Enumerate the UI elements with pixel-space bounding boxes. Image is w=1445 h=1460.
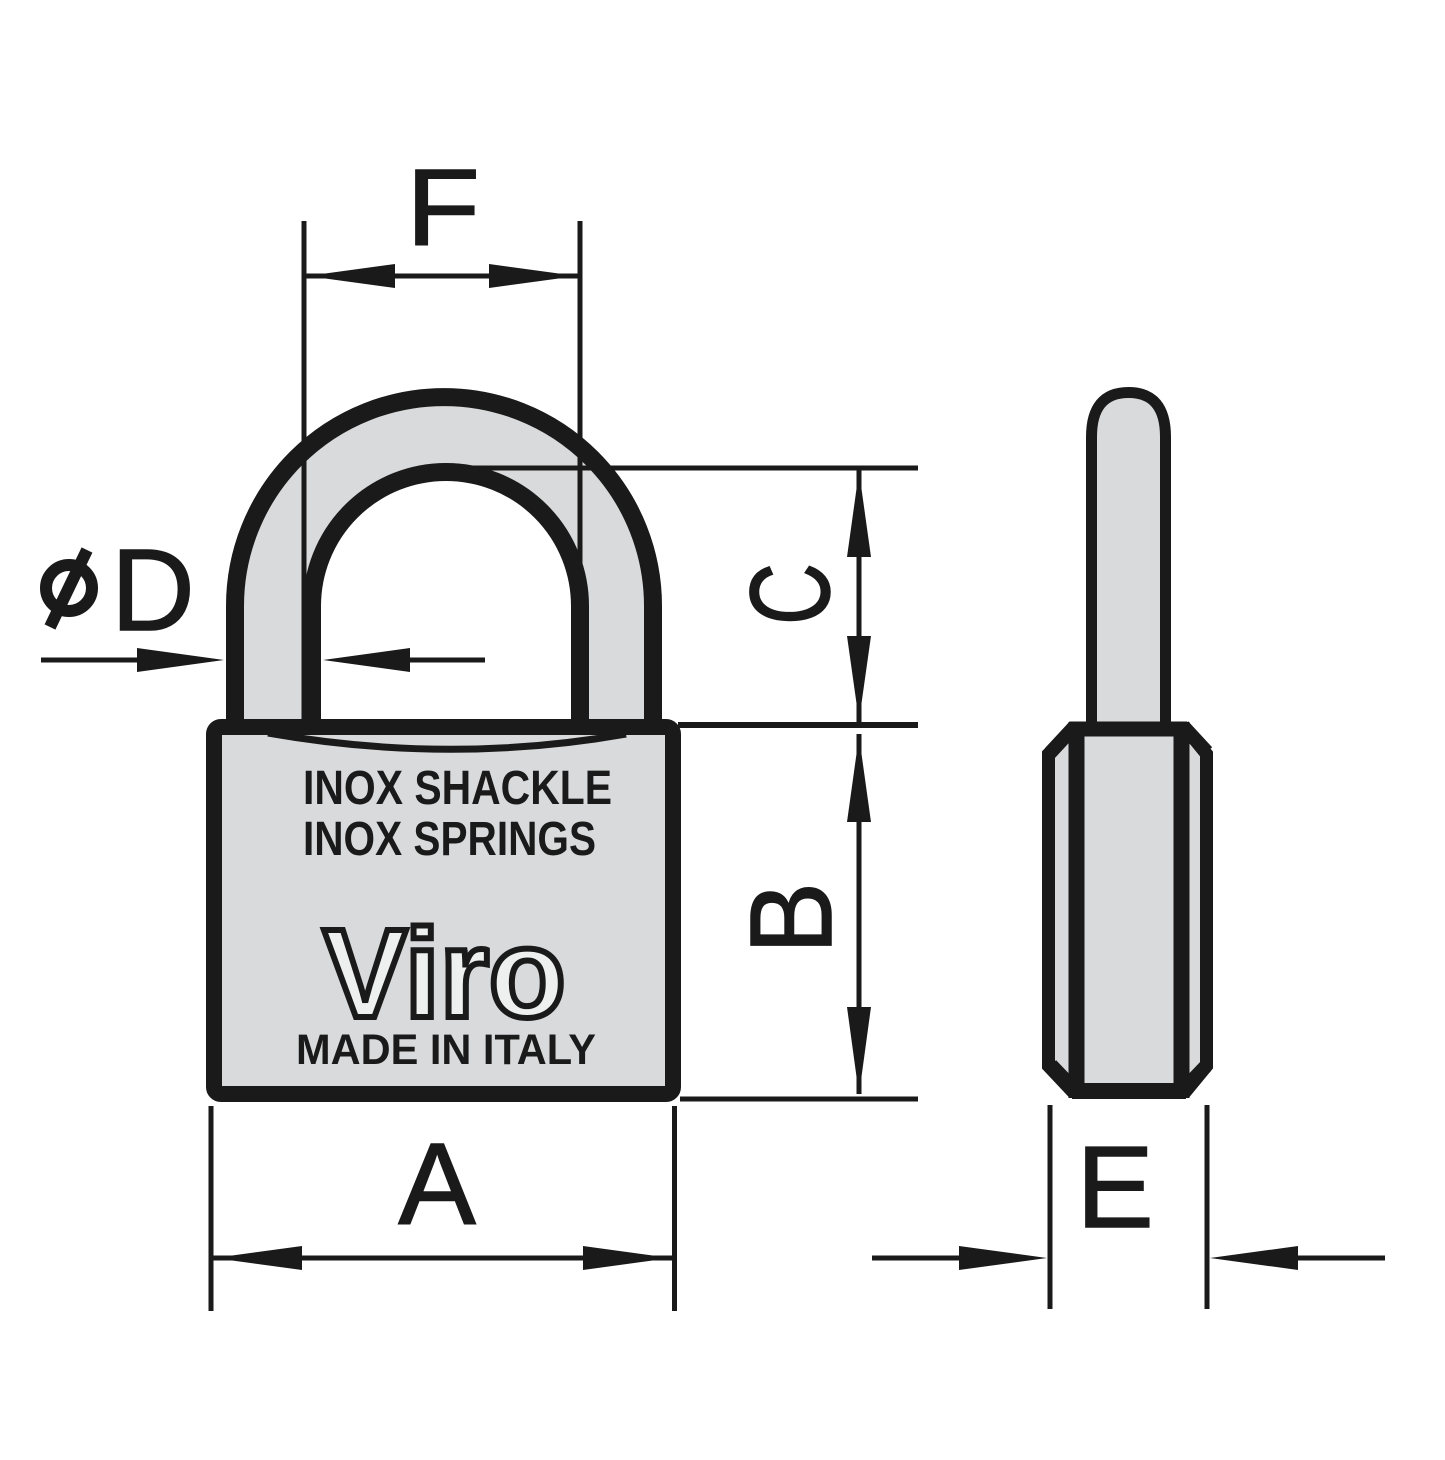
svg-text:F: F: [406, 147, 480, 269]
svg-text:INOX SPRINGS: INOX SPRINGS: [303, 813, 596, 866]
svg-text:E: E: [1076, 1122, 1153, 1252]
svg-text:A: A: [398, 1119, 476, 1249]
svg-text:D: D: [111, 525, 195, 655]
svg-text:C: C: [727, 563, 853, 625]
svg-text:INOX SHACKLE: INOX SHACKLE: [303, 762, 612, 815]
svg-text:MADE IN ITALY: MADE IN ITALY: [296, 1026, 596, 1074]
svg-text:B: B: [726, 882, 856, 954]
svg-text:Viro: Viro: [323, 903, 566, 1044]
